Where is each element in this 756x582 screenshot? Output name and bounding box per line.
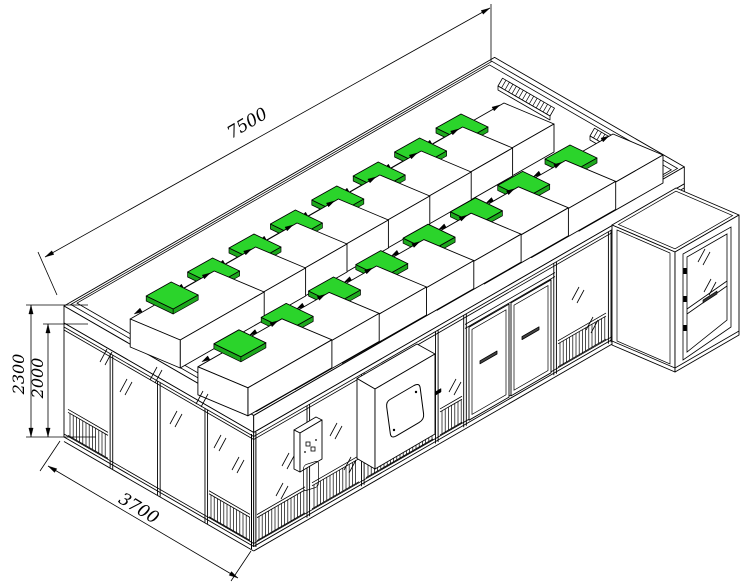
- window-latch: [415, 391, 417, 393]
- dim-arrow: [29, 305, 33, 314]
- dim-arrow: [45, 251, 54, 257]
- cleanroom-isometric-drawing: 7500 3700 2300 2000: [0, 0, 756, 582]
- dim-label-height: 2300: [9, 354, 28, 396]
- control-dot: [315, 439, 317, 441]
- extension-line: [38, 252, 57, 295]
- door-hinge: [683, 268, 687, 274]
- control-panel-side: [294, 430, 300, 472]
- door-hinge: [683, 296, 687, 302]
- pass-box-side: [357, 379, 375, 470]
- dim-arrow: [46, 428, 50, 437]
- air-shower-module: [612, 188, 739, 372]
- dim-arrow: [48, 466, 57, 473]
- window-latch: [393, 429, 395, 431]
- dim-arrow: [29, 428, 33, 437]
- dim-label-width: 3700: [115, 489, 163, 529]
- drawing-canvas: 7500 3700 2300 2000: [0, 0, 756, 582]
- dim-arrow: [481, 8, 490, 14]
- dim-label-length: 7500: [224, 104, 272, 143]
- dim-label-wall-height: 2000: [28, 358, 47, 400]
- air-shower-module-body: [612, 188, 739, 372]
- door-hinge: [683, 325, 687, 331]
- dim-arrow: [46, 324, 50, 333]
- control-dot: [304, 451, 306, 453]
